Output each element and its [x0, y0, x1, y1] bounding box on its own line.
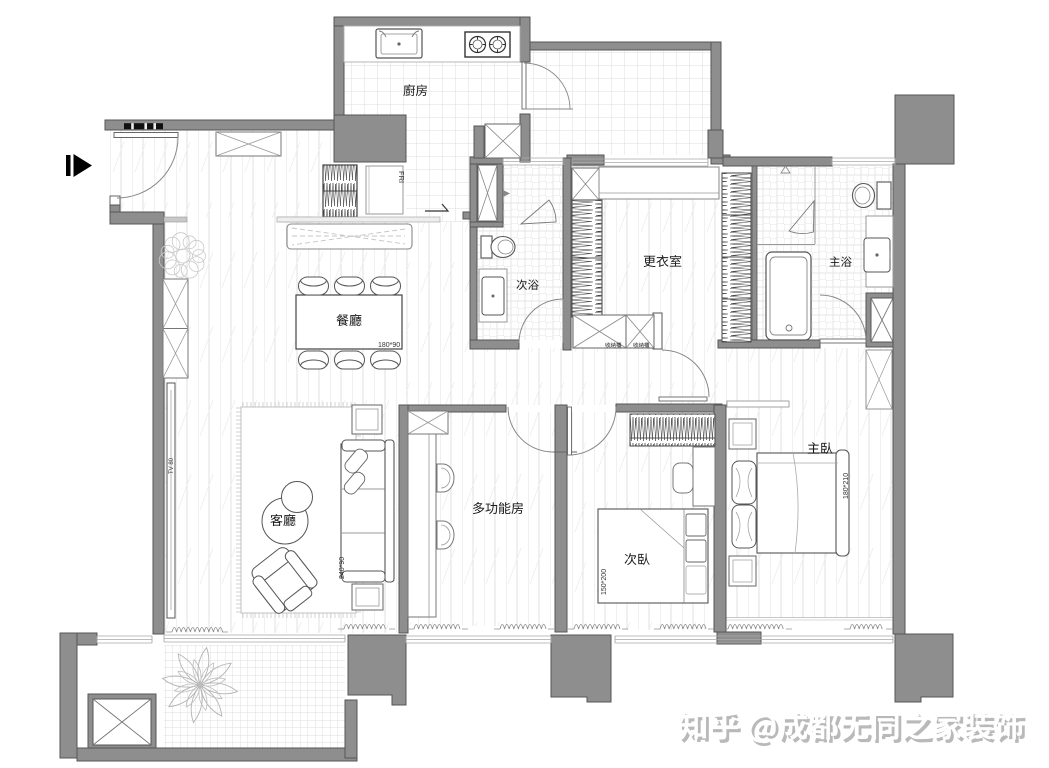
svg-text:TV 80: TV 80: [169, 457, 175, 474]
svg-text:180*210: 180*210: [843, 473, 850, 499]
svg-text:FRI: FRI: [397, 171, 406, 183]
svg-text:150*200: 150*200: [601, 569, 608, 595]
svg-text:180*90: 180*90: [378, 342, 400, 349]
svg-text:240*90: 240*90: [339, 557, 346, 579]
